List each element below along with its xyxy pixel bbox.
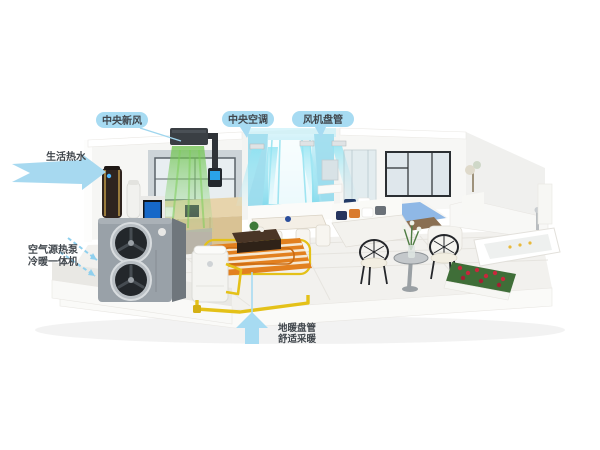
ceiling-vent [250,144,264,149]
ceiling-vent [300,141,314,146]
buffer-tank [192,246,228,302]
fresh-air-label: 中央新风 [102,114,142,127]
heat-pump-outdoor-unit [98,218,186,302]
bedroom-window [386,152,450,196]
sofa-cushion [336,211,347,220]
pipe-valve [193,305,201,313]
table-plant [250,222,259,231]
water-softener [127,180,140,218]
heat-pump-label-line1: 空气源热泵 [28,243,79,256]
tank-indicator-light [107,174,111,178]
sofa-cushion [349,209,360,218]
heat-pump-fan [111,260,151,300]
plant-pedestal [462,192,484,215]
dining-chair [316,225,330,246]
table-decor [285,216,291,222]
sofa-cushion [362,208,373,217]
central-ac-label: 中央空调 [228,113,268,126]
heat-pump-label-line2: 冷暖一体机 [28,255,78,268]
hot-water-label: 生活热水 [46,150,87,163]
vanity-mirror [322,160,338,180]
sofa-cushion [375,206,386,215]
floor-heating-label-line2: 舒适采暖 [278,333,317,345]
fan-coil-label: 风机盘管 [303,113,343,126]
floor-heating-label-line1: 地暖盘管 [278,322,317,334]
house-cutaway-illustration: 中央新风 生活热水 中央空调 风机盘管 空气源热泵 冷暖一体机 地暖盘管 舒适采… [0,0,600,450]
hot-water-tank [102,166,122,218]
heat-pump-house-diagram: 中央新风 生活热水 中央空调 风机盘管 空气源热泵 冷暖一体机 地暖盘管 舒适采… [0,0,600,450]
brand-badge [158,228,166,236]
vanity [318,184,342,194]
heat-pump-fan [111,223,151,263]
pedestal-basin [538,184,552,224]
ceiling-vent [332,141,346,146]
